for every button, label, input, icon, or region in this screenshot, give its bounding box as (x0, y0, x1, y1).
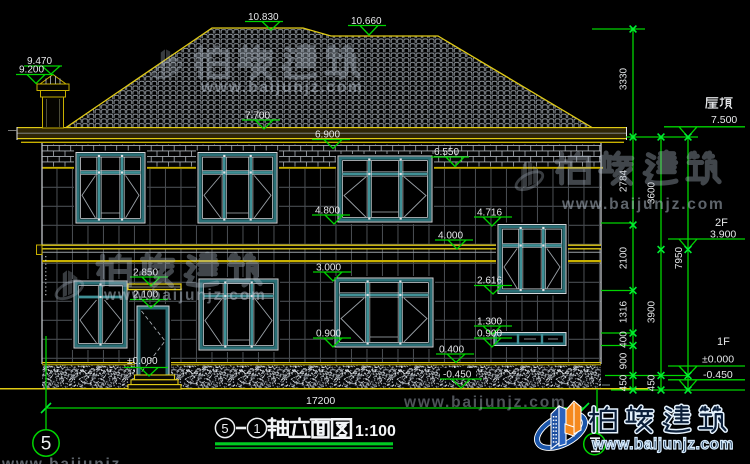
svg-text:900: 900 (619, 352, 630, 369)
svg-text:±0.000: ±0.000 (127, 356, 158, 367)
svg-text:3330: 3330 (619, 67, 630, 90)
svg-text:www.baijunjz.com: www.baijunjz.com (103, 287, 267, 304)
svg-text:2100: 2100 (619, 246, 630, 269)
svg-text:-0.450: -0.450 (703, 369, 733, 381)
svg-text:5: 5 (221, 421, 228, 436)
svg-text:450: 450 (647, 374, 658, 391)
svg-text:www.baijunjz.com: www.baijunjz.com (200, 79, 364, 96)
svg-text:www.baijunjz.com: www.baijunjz.com (561, 196, 725, 213)
svg-text:1316: 1316 (619, 300, 630, 323)
svg-text:7.500: 7.500 (711, 114, 737, 126)
svg-text:17200: 17200 (306, 395, 335, 407)
svg-text:450: 450 (619, 374, 630, 391)
svg-text:±0.000: ±0.000 (702, 354, 734, 366)
svg-text:2F: 2F (715, 217, 728, 229)
svg-text:3.900: 3.900 (710, 229, 736, 241)
svg-text:7950: 7950 (674, 246, 685, 269)
svg-text:1:100: 1:100 (355, 423, 396, 440)
svg-text:3900: 3900 (647, 300, 658, 323)
svg-text:1: 1 (253, 421, 260, 436)
svg-text:www.baijunjz: www.baijunjz (1, 456, 121, 464)
svg-text:5: 5 (41, 434, 52, 455)
svg-text:www.baijunjz.com: www.baijunjz.com (591, 436, 734, 453)
svg-text:1F: 1F (717, 336, 730, 348)
svg-text:www.baijunjz.com: www.baijunjz.com (403, 394, 567, 411)
svg-text:400: 400 (619, 331, 630, 348)
